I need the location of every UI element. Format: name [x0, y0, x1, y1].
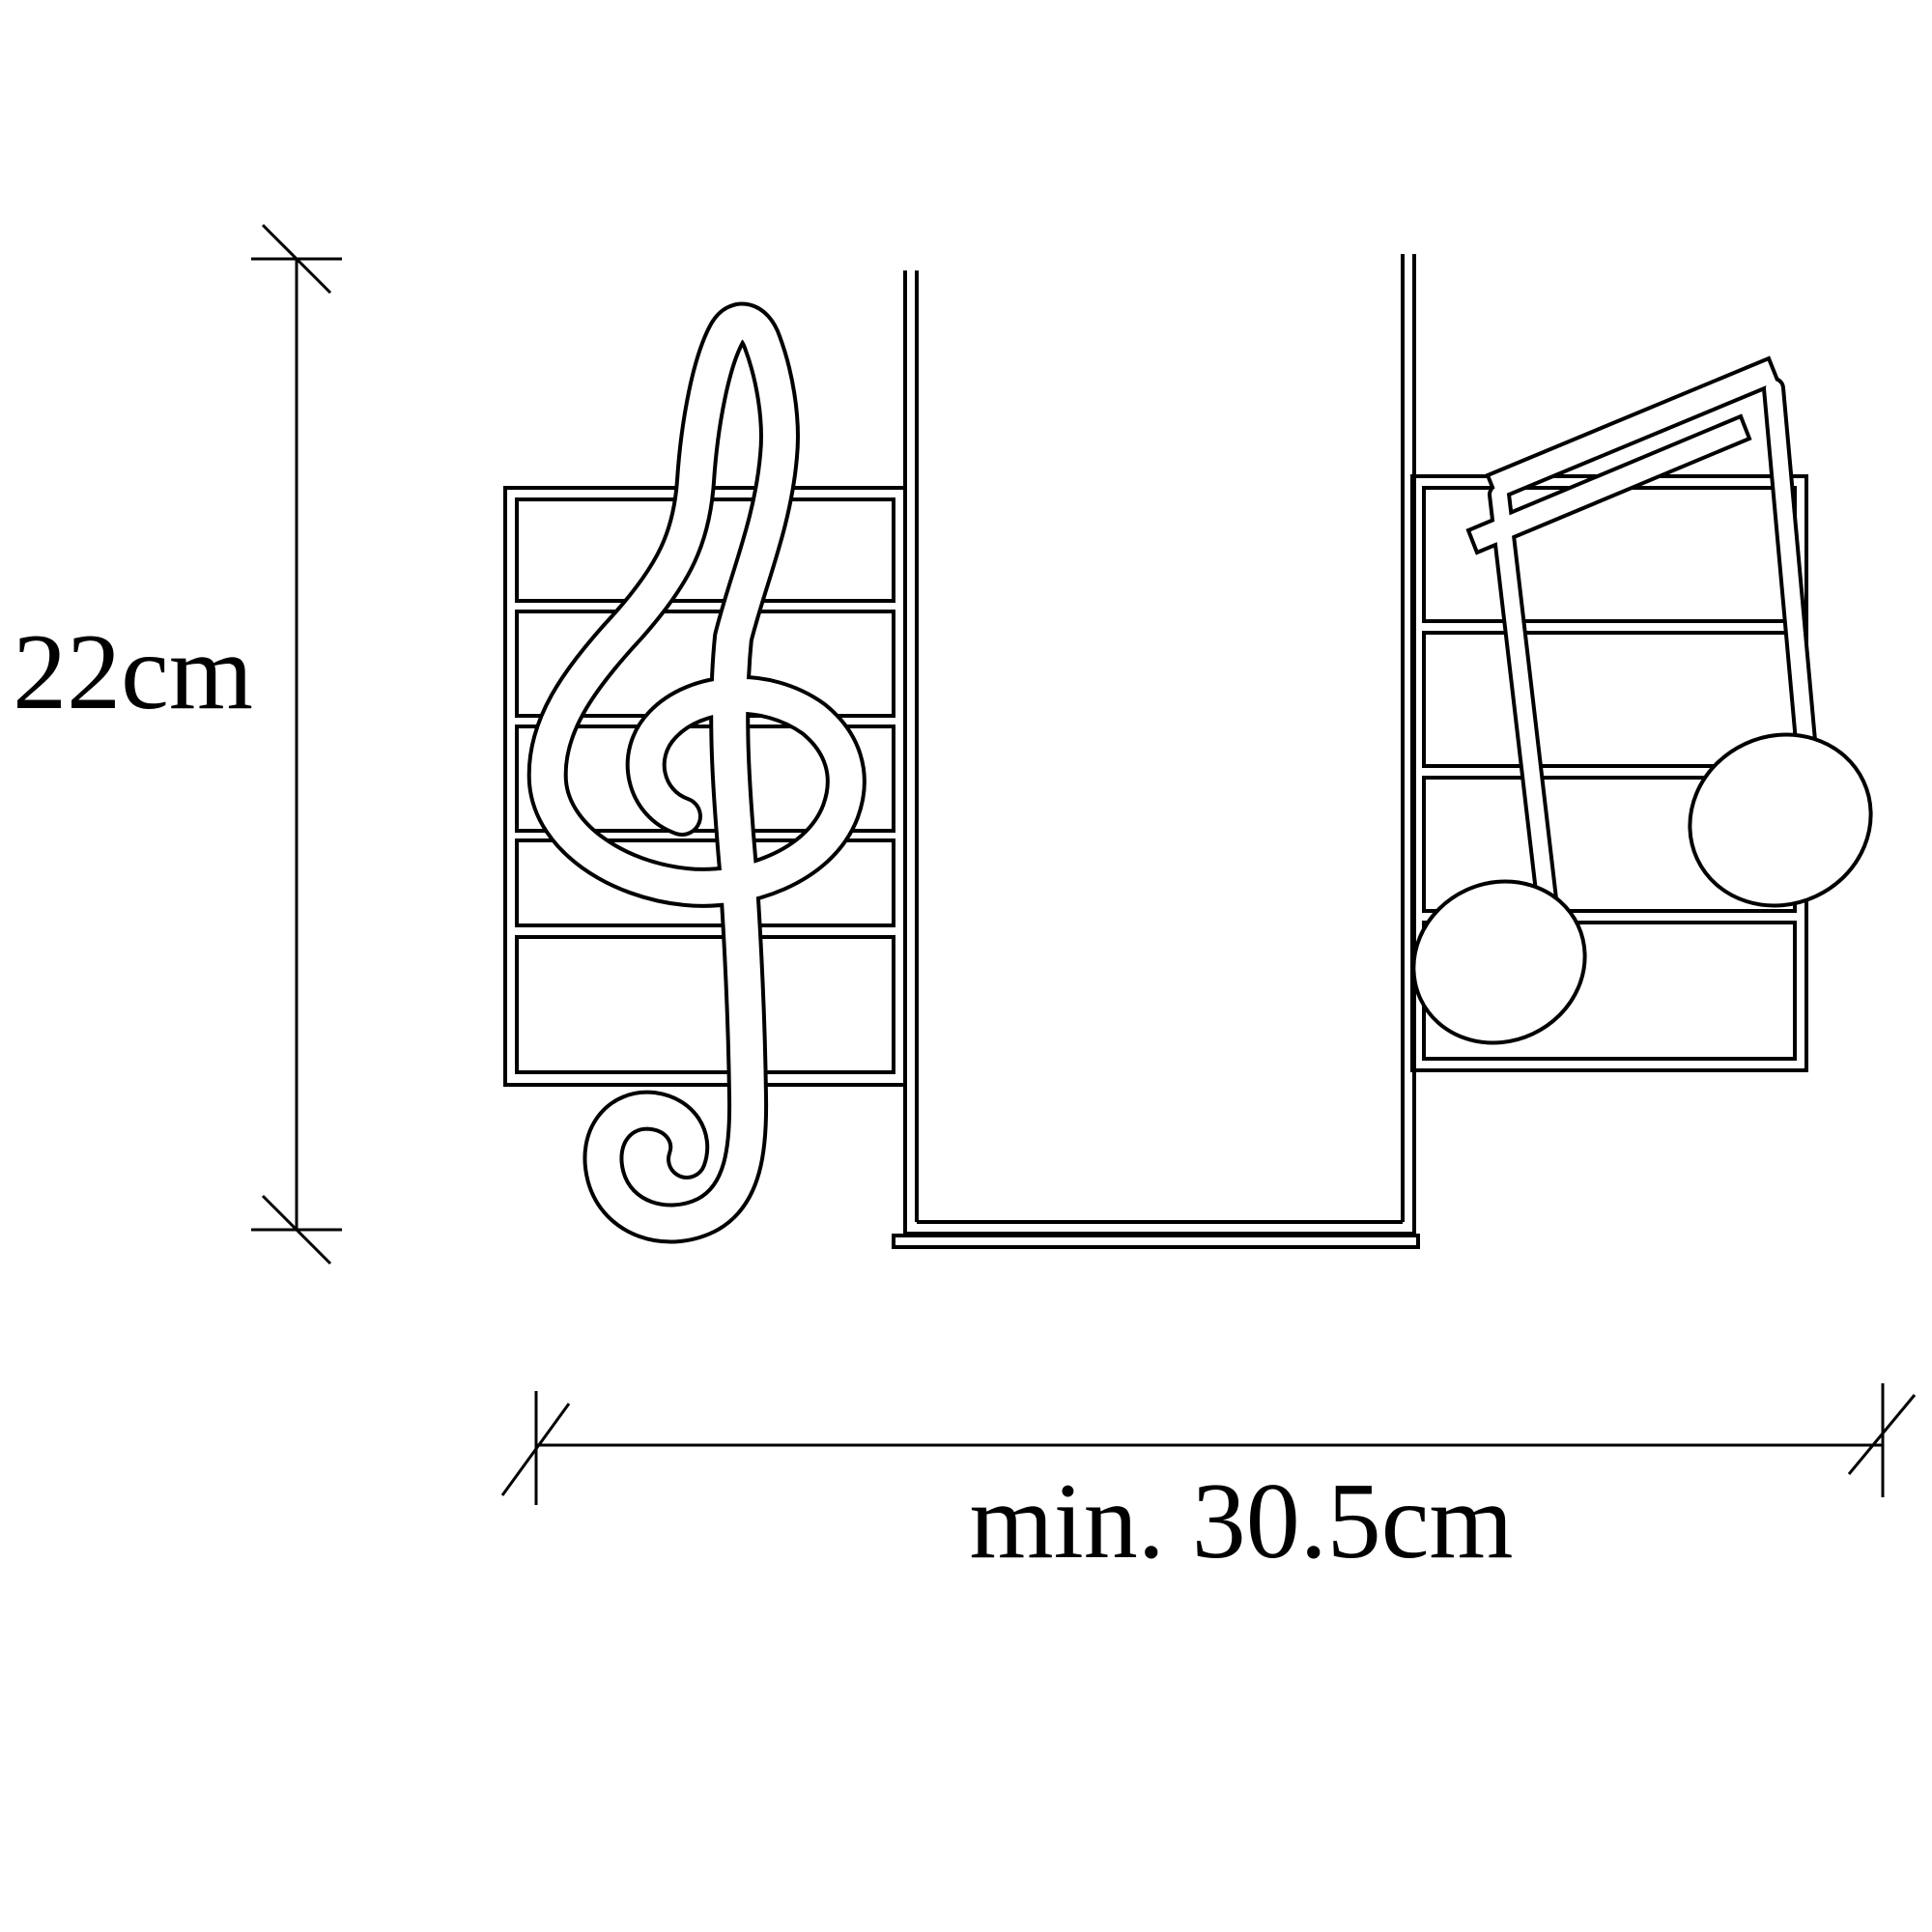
eighth-notes-icon — [1387, 358, 1899, 1070]
right-note-head — [1662, 705, 1899, 935]
u-channel — [894, 254, 1418, 1247]
shelf-diagram: 22cm min. 30.5cm — [0, 0, 1932, 1932]
width-dimension-label: min. 30.5cm — [969, 1462, 1513, 1581]
height-dimension-label: 22cm — [13, 612, 253, 732]
right-shelf-slot — [1424, 488, 1795, 621]
treble-clef-icon — [548, 323, 846, 1224]
left-shelf-slot — [517, 937, 894, 1072]
u-channel-base-plate — [894, 1236, 1418, 1247]
width-dimension-line: min. 30.5cm — [502, 1383, 1915, 1581]
height-dimension-line: 22cm — [13, 225, 342, 1264]
left-note-head — [1387, 854, 1611, 1071]
dimension-drawing: 22cm min. 30.5cm — [0, 0, 1932, 1932]
